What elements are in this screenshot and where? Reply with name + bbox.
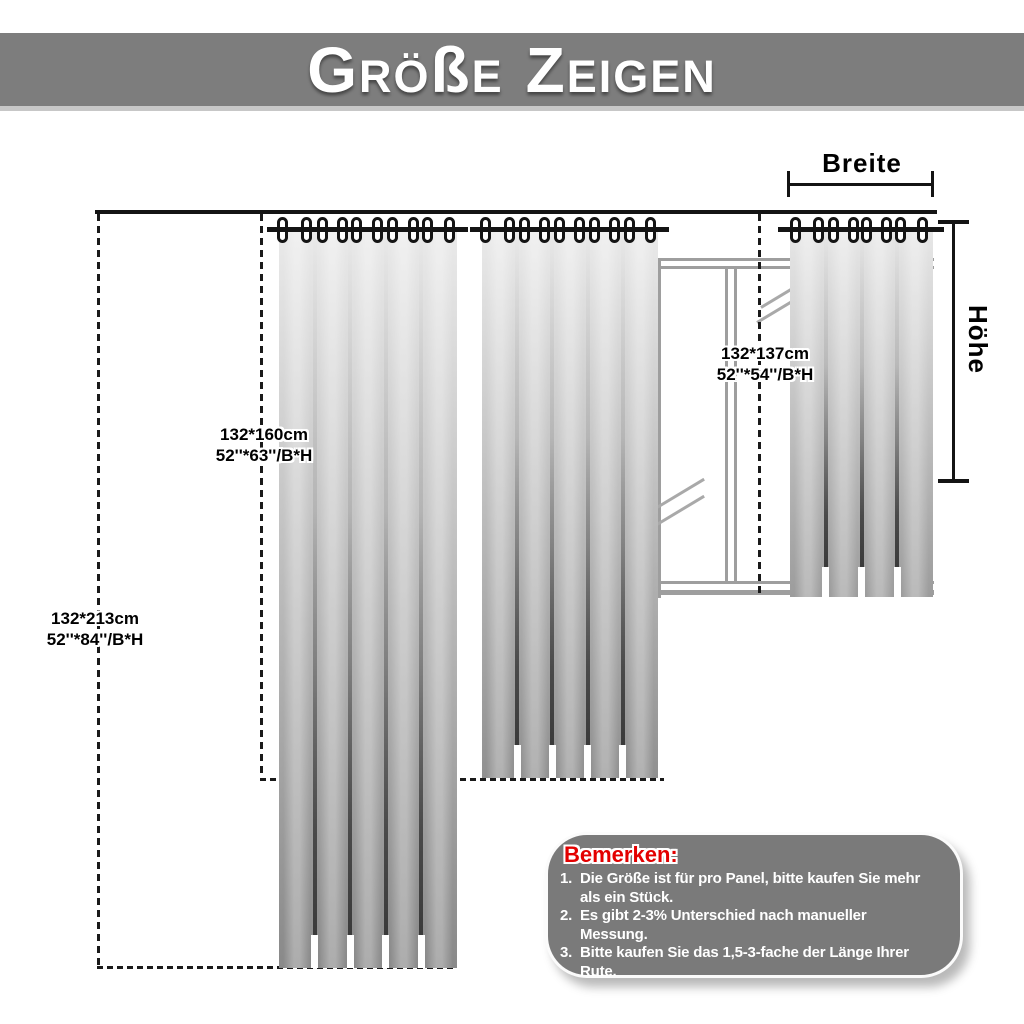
curtain-hem-slit [549,745,556,778]
size-label-137: 132*137cm 52''*54''/B*H [717,343,814,385]
curtain-hem-slit [382,935,389,968]
note-number: 2. [560,907,580,944]
note-number: 3. [560,944,580,981]
note-text: Es gibt 2-3% Unterschied nach manuellerM… [580,907,954,944]
curtain-fold-shading [482,230,658,778]
curtain-panel-160 [482,230,658,778]
curtain-fold-line [586,230,590,745]
curtain-panel-137 [790,230,933,597]
page-title-banner: GRÖßEZEIGEN [0,33,1024,111]
curtain-fold-line [550,230,554,745]
width-measure-label: Breite [790,148,934,179]
size-cm: 132*213cm [47,608,144,629]
page-title-letter: E [472,51,504,102]
page-title-letter: RÖ [359,51,431,102]
size-label-160: 132*160cm 52''*63''/B*H [216,424,313,466]
size-label-213: 132*213cm 52''*84''/B*H [47,608,144,650]
curtain-rod-line [778,227,944,232]
note-number: 1. [560,870,580,907]
note-item: 1.Die Größe ist für pro Panel, bitte kau… [560,870,954,907]
curtain-track-line [95,210,937,214]
notes-panel: Bemerken: 1.Die Größe ist für pro Panel,… [545,832,963,978]
size-infographic: GRÖßEZEIGEN 132*213cm 52''*84''/B*H 132*… [0,0,1024,1024]
page-title: GRÖßEZEIGEN [307,38,717,102]
size-cm: 132*160cm [216,424,313,445]
note-item: 2.Es gibt 2-3% Unterschied nach manuelle… [560,907,954,944]
notes-title: Bemerken: [564,843,954,867]
curtain-hem-slit [347,935,354,968]
curtain-fold-line [419,230,423,935]
curtain-hem-slit [311,935,318,968]
curtain-rod-line [267,227,468,232]
curtain-fold-line [348,230,352,935]
size-cm: 132*137cm [717,343,814,364]
glass-reflection-icon [656,495,705,526]
curtain-hem-slit [514,745,521,778]
curtain-hem-slit [858,567,865,597]
curtain-fold-line [384,230,388,935]
curtain-hem-slit [822,567,829,597]
page-title-letter: G [307,34,359,106]
curtain-hem-slit [894,567,901,597]
height-measure-label: Höhe [962,305,993,374]
curtain-fold-line [860,230,864,567]
size-inches: 52''*63''/B*H [216,445,313,466]
page-title-letter: ß [431,34,472,106]
curtain-fold-line [515,230,519,745]
page-title-letter: Z [526,34,567,106]
curtain-fold-line [621,230,625,745]
note-text: Bitte kaufen Sie das 1,5-3-fache der Län… [580,944,954,981]
curtain-hem-slit [584,745,591,778]
curtain-panel-213 [279,230,457,968]
height-guide-213 [97,214,100,968]
curtain-rod-line [470,227,669,232]
window-left-edge [658,258,661,598]
window-mullion-right [734,266,737,582]
note-item: 3.Bitte kaufen Sie das 1,5-3-fache der L… [560,944,954,981]
curtain-fold-shading [279,230,457,968]
curtain-fold-line [313,230,317,935]
height-guide-137 [758,214,761,598]
curtain-hem-slit [619,745,626,778]
curtain-hem-slit [418,935,425,968]
page-title-letter: EIGEN [567,51,717,102]
height-guide-160 [260,214,263,780]
curtain-fold-line [824,230,828,567]
size-inches: 52''*54''/B*H [717,364,814,385]
curtain-fold-line [895,230,899,567]
note-text: Die Größe ist für pro Panel, bitte kaufe… [580,870,954,907]
window-mullion-left [725,266,728,582]
glass-reflection-icon [656,478,705,509]
size-inches: 52''*84''/B*H [47,629,144,650]
